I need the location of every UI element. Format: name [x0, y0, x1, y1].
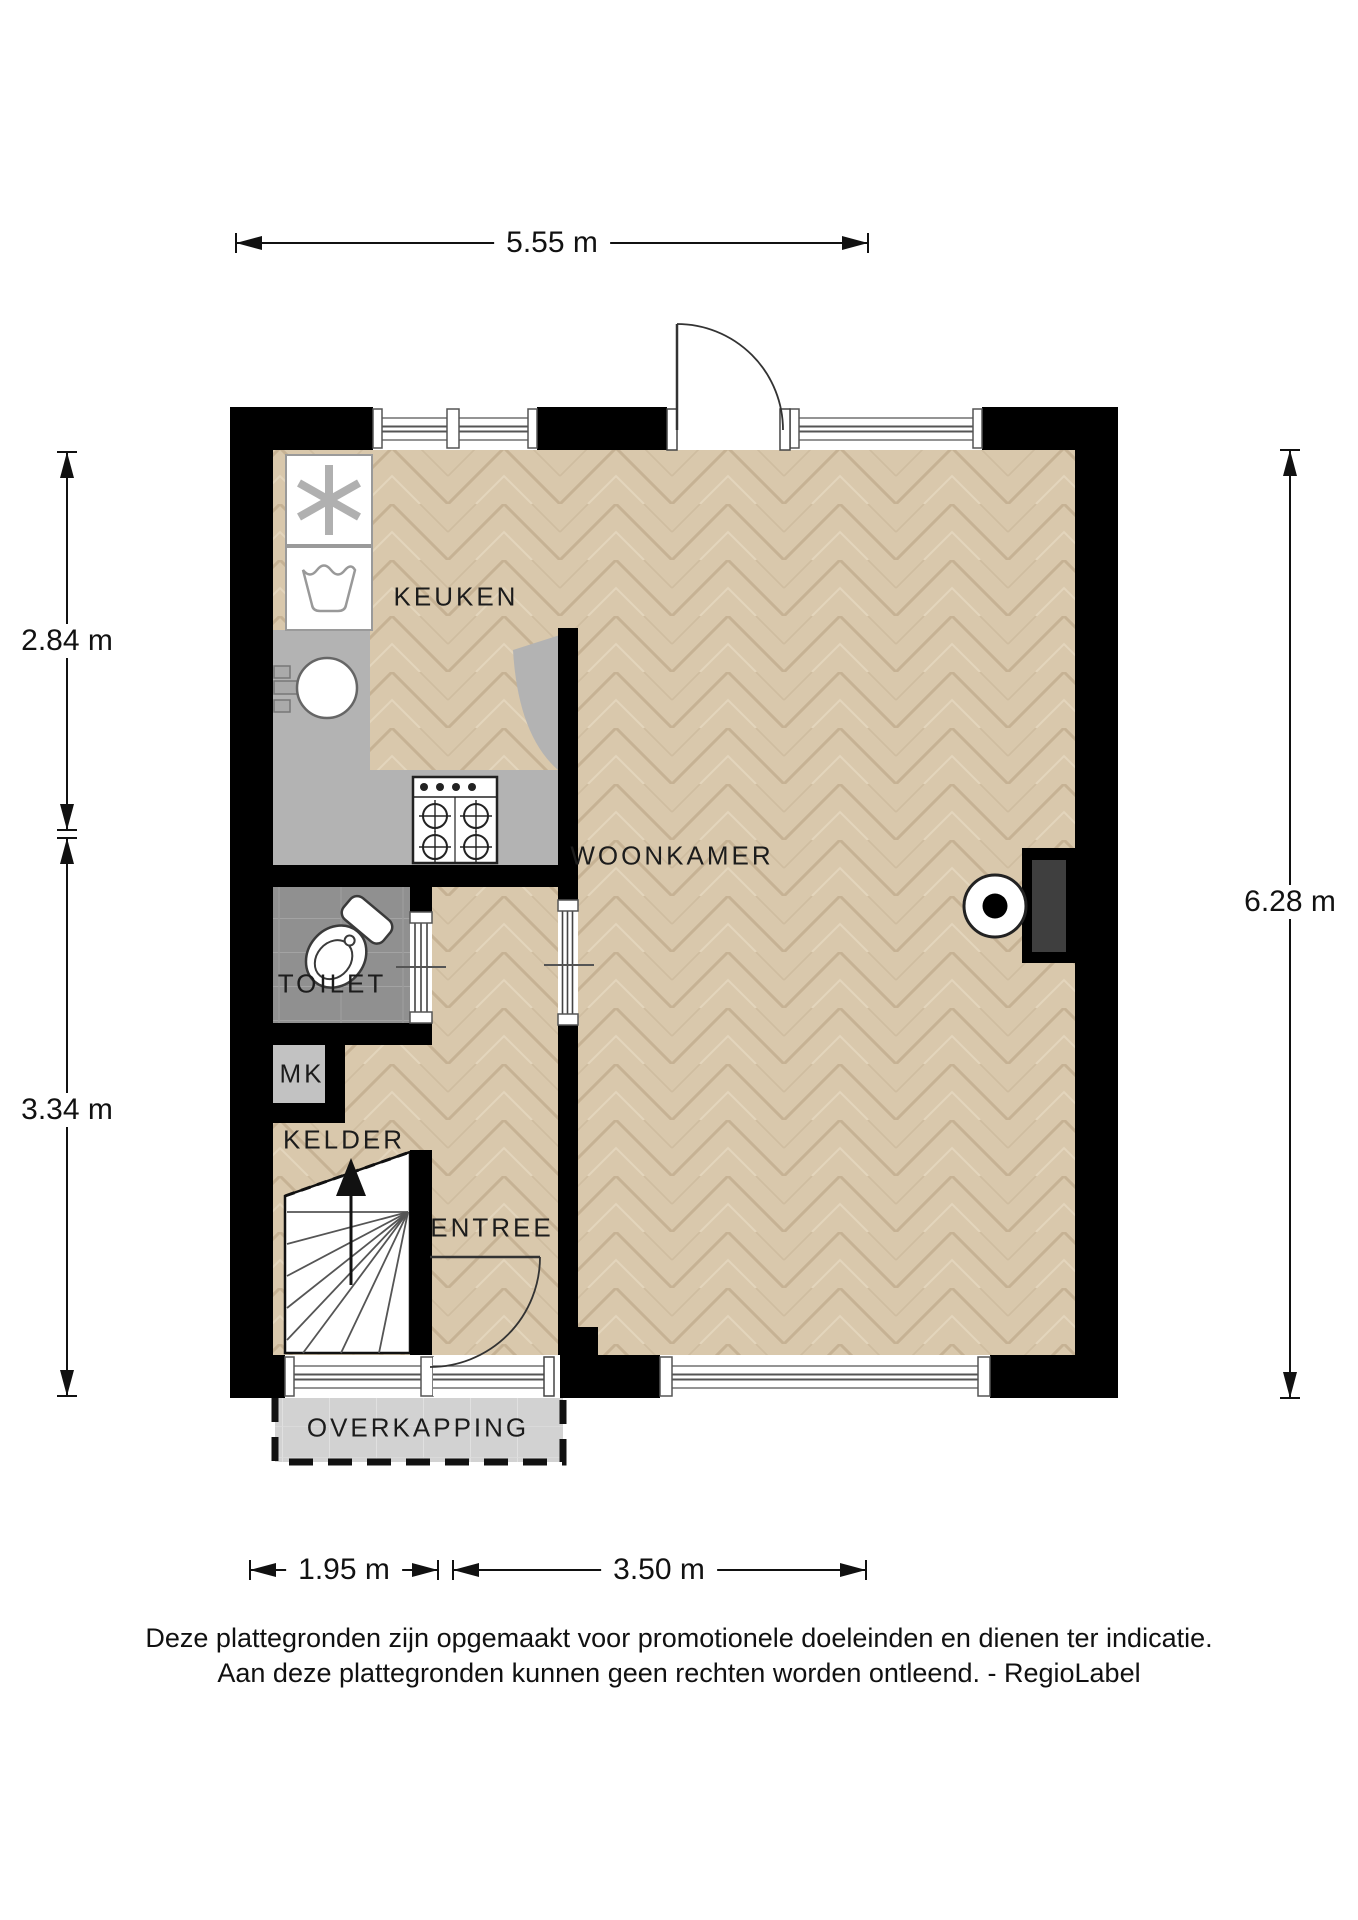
floorplan-page: KEUKEN WOONKAMER TOILET MK KELDER ENTREE… — [0, 0, 1358, 1920]
room-label-mk: MK — [280, 1059, 325, 1090]
dimension-left-lower: 3.34 m — [9, 1093, 125, 1127]
dimension-right: 6.28 m — [1232, 885, 1348, 919]
room-label-keuken: KEUKEN — [394, 582, 519, 613]
dimension-bottom-right: 3.50 m — [601, 1553, 717, 1587]
room-label-entree: ENTREE — [430, 1213, 553, 1244]
back-door — [667, 324, 790, 450]
disclaimer-line-1: Deze plattegronden zijn opgemaakt voor p… — [0, 1623, 1358, 1654]
room-label-kelder: KELDER — [283, 1125, 405, 1156]
kitchen-window — [373, 409, 537, 448]
dimension-left-upper: 2.84 m — [9, 624, 125, 658]
woonkamer-bottom-window — [660, 1357, 990, 1396]
room-label-woonkamer: WOONKAMER — [570, 841, 773, 872]
sink-icon — [274, 658, 357, 718]
dimension-top: 5.55 m — [494, 226, 610, 260]
disclaimer-line-2: Aan deze plattegronden kunnen geen recht… — [0, 1658, 1358, 1689]
woonkamer-top-window — [790, 409, 982, 448]
stove-icon — [413, 777, 497, 863]
chimney — [1022, 848, 1075, 963]
room-label-overkapping: OVERKAPPING — [307, 1413, 529, 1444]
room-label-toilet: TOILET — [278, 969, 387, 1000]
heater-icon — [964, 875, 1026, 937]
entree-window — [285, 1357, 433, 1396]
dimension-bottom-left: 1.95 m — [286, 1553, 402, 1587]
